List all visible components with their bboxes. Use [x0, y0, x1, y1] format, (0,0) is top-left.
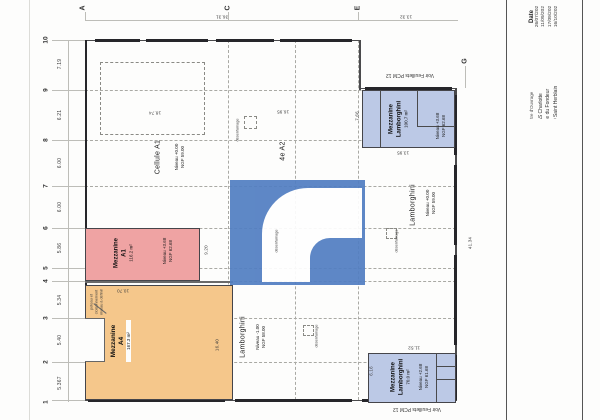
- smoke-vent-symbol: [303, 325, 314, 336]
- row-tick: [52, 362, 85, 363]
- partition: [436, 379, 456, 380]
- grid-number-10: 10: [43, 36, 50, 43]
- dim-lambo-top-width: 13.95: [397, 151, 409, 156]
- desenfumage-label: désenfumage: [236, 118, 241, 141]
- row-tick: [52, 40, 85, 41]
- mezzanine-lambo-bottom-label: Mezzanine Lamborghini 70.0 m²: [391, 359, 412, 395]
- grid-letter-c: C: [225, 5, 232, 10]
- dim-left: 5.34: [57, 295, 63, 306]
- wall-top-seg: [146, 39, 208, 42]
- mezzanine-area: 167.3 m²: [126, 325, 132, 358]
- dim-lambo-top-depth: 7.66: [355, 111, 360, 121]
- mezzanine-a1-level: Niveau +3.68 NGF 62.68: [162, 238, 174, 265]
- mezzanine-a4-region: [85, 285, 233, 400]
- voir-feuillets-bottom: Voir Feuillets PCM 12: [393, 406, 441, 412]
- titleblock-owner-cell: Maître d'Ouvrage SAS Charlotte 9 Rue du …: [507, 33, 582, 120]
- date-cell-content: Date 26/07/202 11/09/202 17/09/202 16/10…: [507, 0, 582, 33]
- mezzanine-title: Mezzanine: [110, 325, 118, 358]
- ngf-text: NGF 62.68: [441, 113, 447, 140]
- wall-right-upper: [359, 40, 361, 90]
- niveau-text: Niveau +0.00: [174, 144, 180, 171]
- a4-annotation: poteau et cloisonnement niveau à définir: [90, 289, 105, 315]
- grid-letter-e: E: [355, 6, 362, 11]
- dim-left: 5.367: [57, 376, 63, 390]
- dim-lambo-bottom-width: 11.52: [408, 346, 420, 351]
- dim-top: 36.31: [216, 15, 228, 20]
- niveau-text: Niveau +2.68: [418, 364, 424, 391]
- grid-number-1: 1: [43, 400, 50, 404]
- partition: [417, 90, 418, 126]
- row-tick: [52, 268, 85, 269]
- titleblock-date-cell: Date 26/07/202 11/09/202 17/09/202 16/10…: [507, 0, 582, 34]
- dim-cellule-a1-width: 18.74: [149, 111, 161, 116]
- dim-left: 6.00: [57, 158, 63, 169]
- dim-left: 5.40: [57, 335, 63, 346]
- mezzanine-title: Mezzanine: [114, 238, 122, 268]
- mezzanine-lambo-bottom-level: Niveau +2.68 NGF 61.68: [418, 364, 430, 391]
- grid-number-5: 5: [43, 266, 50, 270]
- mezzanine-a4-label: Mezzanine A4 167.3 m²: [110, 325, 132, 358]
- grid-number-8: 8: [43, 138, 50, 142]
- ngf-text: NGF 58.00: [261, 324, 267, 350]
- mezzanine-code: A1: [121, 238, 129, 268]
- mezzanine-title: Mezzanine: [389, 101, 397, 137]
- grid-number-9: 9: [43, 88, 50, 92]
- ngf-text: NGF 59.00: [180, 144, 186, 171]
- mezzanine-code: Lamborghini: [398, 359, 406, 395]
- room-label-lamborghini: Lamborghini: [410, 184, 417, 226]
- titleblock-logo-cell: AGENCE A ARCHITECTURE Architecte: [507, 196, 582, 248]
- row-tick: [52, 140, 85, 141]
- titleblock-footer-cell: PC MODIFICATIF N: [507, 367, 582, 420]
- titleblock-title-cell: PC MODIFICATIF Vue en Plan Mezzanines: [507, 247, 582, 368]
- niveau-text: Niveau +0.00: [425, 190, 431, 217]
- left-dim-line: [68, 40, 69, 402]
- desenfumage-label: désenfumage: [275, 229, 280, 252]
- col-stub-c: [228, 12, 229, 21]
- watermark-logo: [230, 180, 365, 285]
- niveau-text: Niveau +3.68: [435, 113, 441, 140]
- mezzanine-title: Mezzanine: [391, 359, 399, 395]
- mezzanine-code: A4: [118, 325, 126, 358]
- room-label-lamborghini-lower: Lamborghini: [240, 316, 247, 358]
- row-tick: [52, 90, 85, 91]
- top-dim-line: [85, 20, 458, 21]
- wall-right-seg: [454, 255, 457, 345]
- room-level-lamborghini: Niveau +0.00 NGF 59.00: [425, 190, 437, 217]
- wall-row4: [85, 281, 233, 283]
- col-stub-a: [85, 12, 86, 21]
- desenfumage-label: désenfumage: [395, 229, 400, 252]
- dim-left: 6.21: [57, 110, 63, 121]
- desenfumage-label: désenfumage: [315, 324, 320, 347]
- smoke-vent-symbol: [244, 116, 257, 129]
- mezzanine-lambo-top-label: Mezzanine Lamborghini 100.7 m²: [389, 101, 410, 137]
- niveau-text: Niveau +3.68: [162, 238, 168, 265]
- grid-letter-g: G: [462, 58, 469, 63]
- wall-top-seg: [280, 39, 352, 42]
- titleblock-right-border: [582, 0, 583, 420]
- dim-mezz-a1-depth: 9.20: [204, 245, 209, 255]
- ngf-text: NGF 62.68: [168, 238, 174, 265]
- room-label-a2: 4e A2: [280, 141, 287, 160]
- owner-label: Maître d'Ouvrage: [529, 92, 534, 120]
- room-level-cellule-a1: Niveau +0.00 NGF 59.00: [174, 144, 186, 171]
- floor-plan-sheet: A C E G 10 9 8 7 6 5 4 3 2 1 7.19 6.21 6…: [0, 0, 600, 420]
- owner-line: 44800 Saint Herblain: [553, 86, 561, 120]
- owner-line: SAS Charlotte: [538, 93, 546, 120]
- wall-top-seg: [95, 39, 140, 42]
- watermark-glyph-cut: [310, 238, 362, 282]
- titleblock-architect-cell: AGENCE A 270, Boulevard Clemenceau 59 70…: [507, 119, 582, 197]
- grid-number-3: 3: [43, 316, 50, 320]
- mezzanine-area: 70.0 m²: [406, 359, 412, 395]
- dim-right-height: 41.34: [468, 237, 473, 249]
- sheet-left-edge: [29, 0, 30, 420]
- partition: [380, 90, 381, 148]
- room-level-lamborghini-lower: Niveau -1.00 NGF 58.00: [255, 324, 267, 350]
- wall-bottom-seg: [235, 399, 352, 402]
- grid-number-7: 7: [43, 184, 50, 188]
- grid-number-2: 2: [43, 360, 50, 364]
- mezzanine-area: 116.2 m²: [129, 238, 135, 268]
- mezzanine-code: Lamborghini: [396, 101, 404, 137]
- niveau-text: Niveau -1.00: [255, 324, 261, 350]
- row-tick: [52, 318, 85, 319]
- voir-feuillets-top: Voir Feuillets PCM 12: [386, 72, 434, 78]
- row-tick: [52, 186, 85, 187]
- col-stub-e: [358, 12, 359, 21]
- row-tick: [52, 228, 85, 229]
- owner-cell-content: Maître d'Ouvrage SAS Charlotte 9 Rue du …: [507, 66, 582, 120]
- row-tick: [52, 281, 85, 282]
- grid-number-6: 6: [43, 226, 50, 230]
- partition: [436, 366, 456, 367]
- grid-letter-a: A: [80, 5, 87, 10]
- row-tick: [52, 400, 85, 401]
- partition: [436, 353, 437, 403]
- mezzanine-a1-region: [85, 228, 200, 281]
- a4-notch: [85, 318, 105, 362]
- grid-number-4: 4: [43, 279, 50, 283]
- room-label-cellule-a1: Cellule A1: [155, 140, 162, 175]
- dim-left: 6.00: [57, 202, 63, 213]
- owner-line: 9 Rue du Fondeur: [545, 89, 553, 120]
- note-line: niveau à définir: [99, 289, 104, 315]
- dim-left: 5.86: [57, 243, 63, 254]
- dim-a4-depth: 16.40: [215, 339, 220, 351]
- ngf-text: NGF 61.68: [424, 364, 430, 391]
- wall-top-seg: [216, 39, 274, 42]
- dim-lambo-bottom-depth: 6.16: [369, 366, 374, 376]
- mezzanine-lamborghini-bottom-region: [368, 353, 456, 403]
- wall-right-seg: [454, 165, 457, 245]
- date-value: 16/10/202: [554, 6, 560, 27]
- dim-a2-width: 16.95: [277, 110, 289, 115]
- dim-left: 7.19: [57, 59, 63, 70]
- ngf-text: NGF 59.00: [431, 190, 437, 217]
- dim-top: 13.32: [400, 15, 412, 20]
- interior-partition-dashed: [100, 62, 205, 135]
- dim-a4-width-top: 10.70: [117, 289, 129, 294]
- mezzanine-a1-label: Mezzanine A1 116.2 m²: [114, 238, 135, 268]
- mezzanine-lambo-top-level: Niveau +3.68 NGF 62.68: [435, 113, 447, 140]
- col-stub-g: [465, 66, 466, 88]
- mezzanine-area: 100.7 m²: [404, 101, 410, 137]
